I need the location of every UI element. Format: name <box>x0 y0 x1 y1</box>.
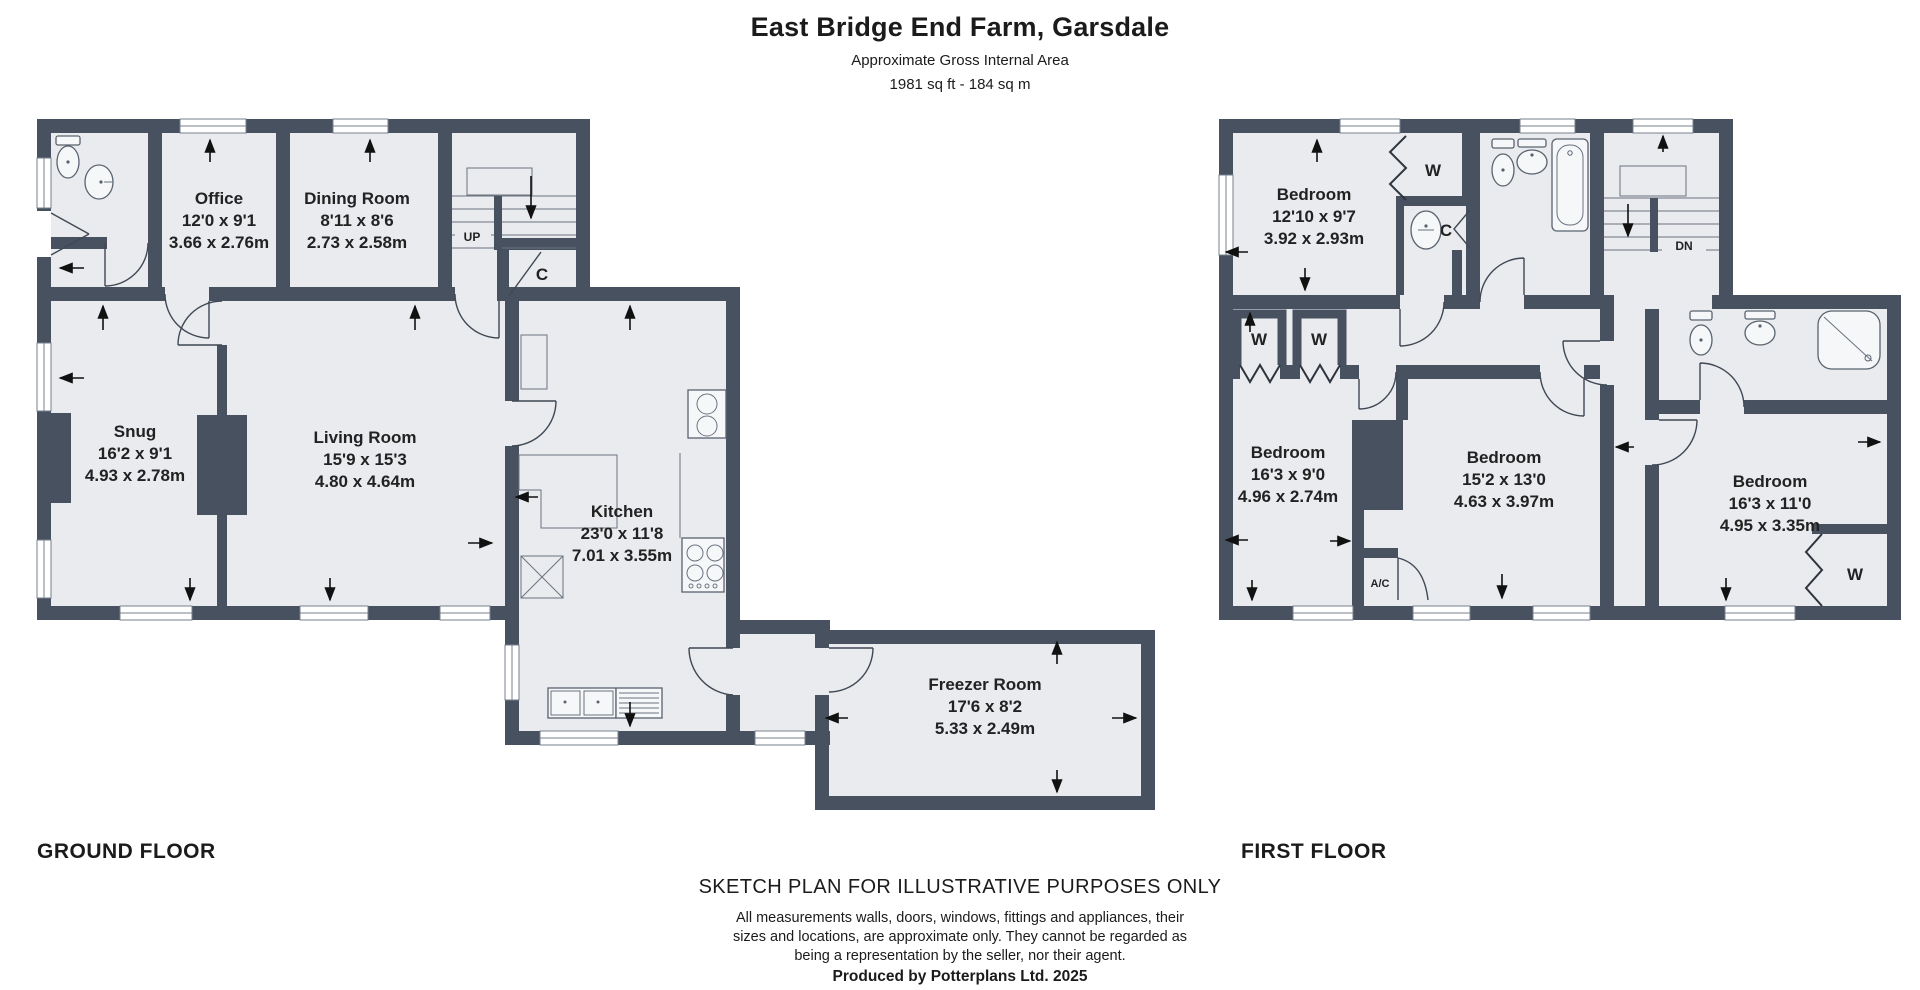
svg-text:12'0 x 9'1: 12'0 x 9'1 <box>182 211 256 230</box>
svg-text:Bedroom: Bedroom <box>1467 448 1542 467</box>
up-stairs-label: UP <box>464 230 481 244</box>
bedroom1-label: Bedroom 12'10 x 9'7 3.92 x 2.93m <box>1264 185 1364 248</box>
ground-cupboard-label: C <box>536 265 548 284</box>
svg-text:15'9 x 15'3: 15'9 x 15'3 <box>323 450 407 469</box>
landing-wardrobe2-label: W <box>1311 330 1328 349</box>
svg-text:Bedroom: Bedroom <box>1733 472 1808 491</box>
svg-text:Office: Office <box>195 189 243 208</box>
bathroom-sink-icon <box>1517 139 1547 174</box>
svg-text:4.80 x 4.64m: 4.80 x 4.64m <box>315 472 415 491</box>
kitchen-sink-icon <box>548 688 662 718</box>
svg-text:Kitchen: Kitchen <box>591 502 653 521</box>
snug-left-chimney <box>51 413 71 503</box>
svg-text:8'11 x 8'6: 8'11 x 8'6 <box>320 211 393 230</box>
svg-text:Bedroom: Bedroom <box>1251 443 1326 462</box>
first-cupboard-label: C <box>1440 221 1452 240</box>
svg-text:7.01 x 3.55m: 7.01 x 3.55m <box>572 546 672 565</box>
svg-text:Bedroom: Bedroom <box>1277 185 1352 204</box>
page-title: East Bridge End Farm, Garsdale <box>0 12 1920 43</box>
area-value: 1981 sq ft - 184 sq m <box>0 76 1920 93</box>
wc-sink-icon <box>85 165 113 199</box>
bathroom-toilet-icon <box>1492 139 1514 186</box>
range-cooker-icon <box>688 390 726 438</box>
living-room-label: Living Room 15'9 x 15'3 4.80 x 4.64m <box>314 428 417 491</box>
floorplan-canvas: UP <box>0 0 1920 990</box>
first-chimney-breast <box>1352 420 1403 510</box>
svg-text:15'2 x 13'0: 15'2 x 13'0 <box>1462 470 1546 489</box>
svg-text:4.96 x 2.74m: 4.96 x 2.74m <box>1238 487 1338 506</box>
ground-floor-title: GROUND FLOOR <box>37 840 216 864</box>
svg-text:Living Room: Living Room <box>314 428 417 447</box>
svg-text:3.66 x 2.76m: 3.66 x 2.76m <box>169 233 269 252</box>
svg-text:4.95 x 3.35m: 4.95 x 3.35m <box>1720 516 1820 535</box>
ground-floor-plan: UP <box>37 119 1155 810</box>
ensuite-sink-icon <box>1745 311 1775 345</box>
chimney-breast <box>197 415 247 515</box>
svg-text:12'10 x 9'7: 12'10 x 9'7 <box>1272 207 1356 226</box>
svg-text:16'2 x 9'1: 16'2 x 9'1 <box>98 444 172 463</box>
cupboard-sink-icon <box>1411 211 1441 249</box>
disclaimer-line-2: sizes and locations, are approximate onl… <box>0 929 1920 945</box>
svg-text:23'0 x 11'8: 23'0 x 11'8 <box>581 524 664 543</box>
dn-stairs-label: DN <box>1675 239 1692 253</box>
svg-text:Snug: Snug <box>114 422 157 441</box>
bedroom3-label: Bedroom 15'2 x 13'0 4.63 x 3.97m <box>1454 448 1554 511</box>
disclaimer-line-1: All measurements walls, doors, windows, … <box>0 910 1920 926</box>
floorplan-page: East Bridge End Farm, Garsdale Approxima… <box>0 0 1920 990</box>
svg-text:Dining Room: Dining Room <box>304 189 410 208</box>
svg-text:Freezer Room: Freezer Room <box>928 675 1041 694</box>
bedroom1-wardrobe-label: W <box>1425 161 1442 180</box>
bedroom2-label: Bedroom 16'3 x 9'0 4.96 x 2.74m <box>1238 443 1338 506</box>
svg-text:17'6 x 8'2: 17'6 x 8'2 <box>948 697 1022 716</box>
first-floor-title: FIRST FLOOR <box>1241 840 1387 864</box>
svg-text:4.63 x 3.97m: 4.63 x 3.97m <box>1454 492 1554 511</box>
landing-wardrobe1-label: W <box>1251 330 1268 349</box>
ensuite-toilet-icon <box>1690 311 1712 355</box>
svg-text:16'3 x 11'0: 16'3 x 11'0 <box>1729 494 1812 513</box>
bedroom4-wardrobe-label: W <box>1847 565 1864 584</box>
svg-text:16'3 x 9'0: 16'3 x 9'0 <box>1251 465 1325 484</box>
svg-text:3.92 x 2.93m: 3.92 x 2.93m <box>1264 229 1364 248</box>
bedroom4-label: Bedroom 16'3 x 11'0 4.95 x 3.35m <box>1720 472 1820 535</box>
sketch-disclaimer-title: SKETCH PLAN FOR ILLUSTRATIVE PURPOSES ON… <box>0 876 1920 899</box>
disclaimer-line-3: being a representation by the seller, no… <box>0 948 1920 964</box>
producer-credit: Produced by Potterplans Ltd. 2025 <box>0 968 1920 986</box>
first-floor-plan: DN <box>1219 119 1901 620</box>
airing-cupboard-label: A/C <box>1371 578 1390 590</box>
svg-text:4.93 x 2.78m: 4.93 x 2.78m <box>85 466 185 485</box>
svg-text:2.73 x 2.58m: 2.73 x 2.58m <box>307 233 407 252</box>
shower-icon <box>1818 311 1880 369</box>
hob-icon <box>682 538 724 592</box>
bathtub-icon <box>1552 139 1588 231</box>
gross-internal-area-subtitle: Approximate Gross Internal Area <box>0 52 1920 69</box>
svg-text:5.33 x 2.49m: 5.33 x 2.49m <box>935 719 1035 738</box>
entrance-opening <box>37 211 51 257</box>
wc-toilet-icon <box>56 136 80 178</box>
